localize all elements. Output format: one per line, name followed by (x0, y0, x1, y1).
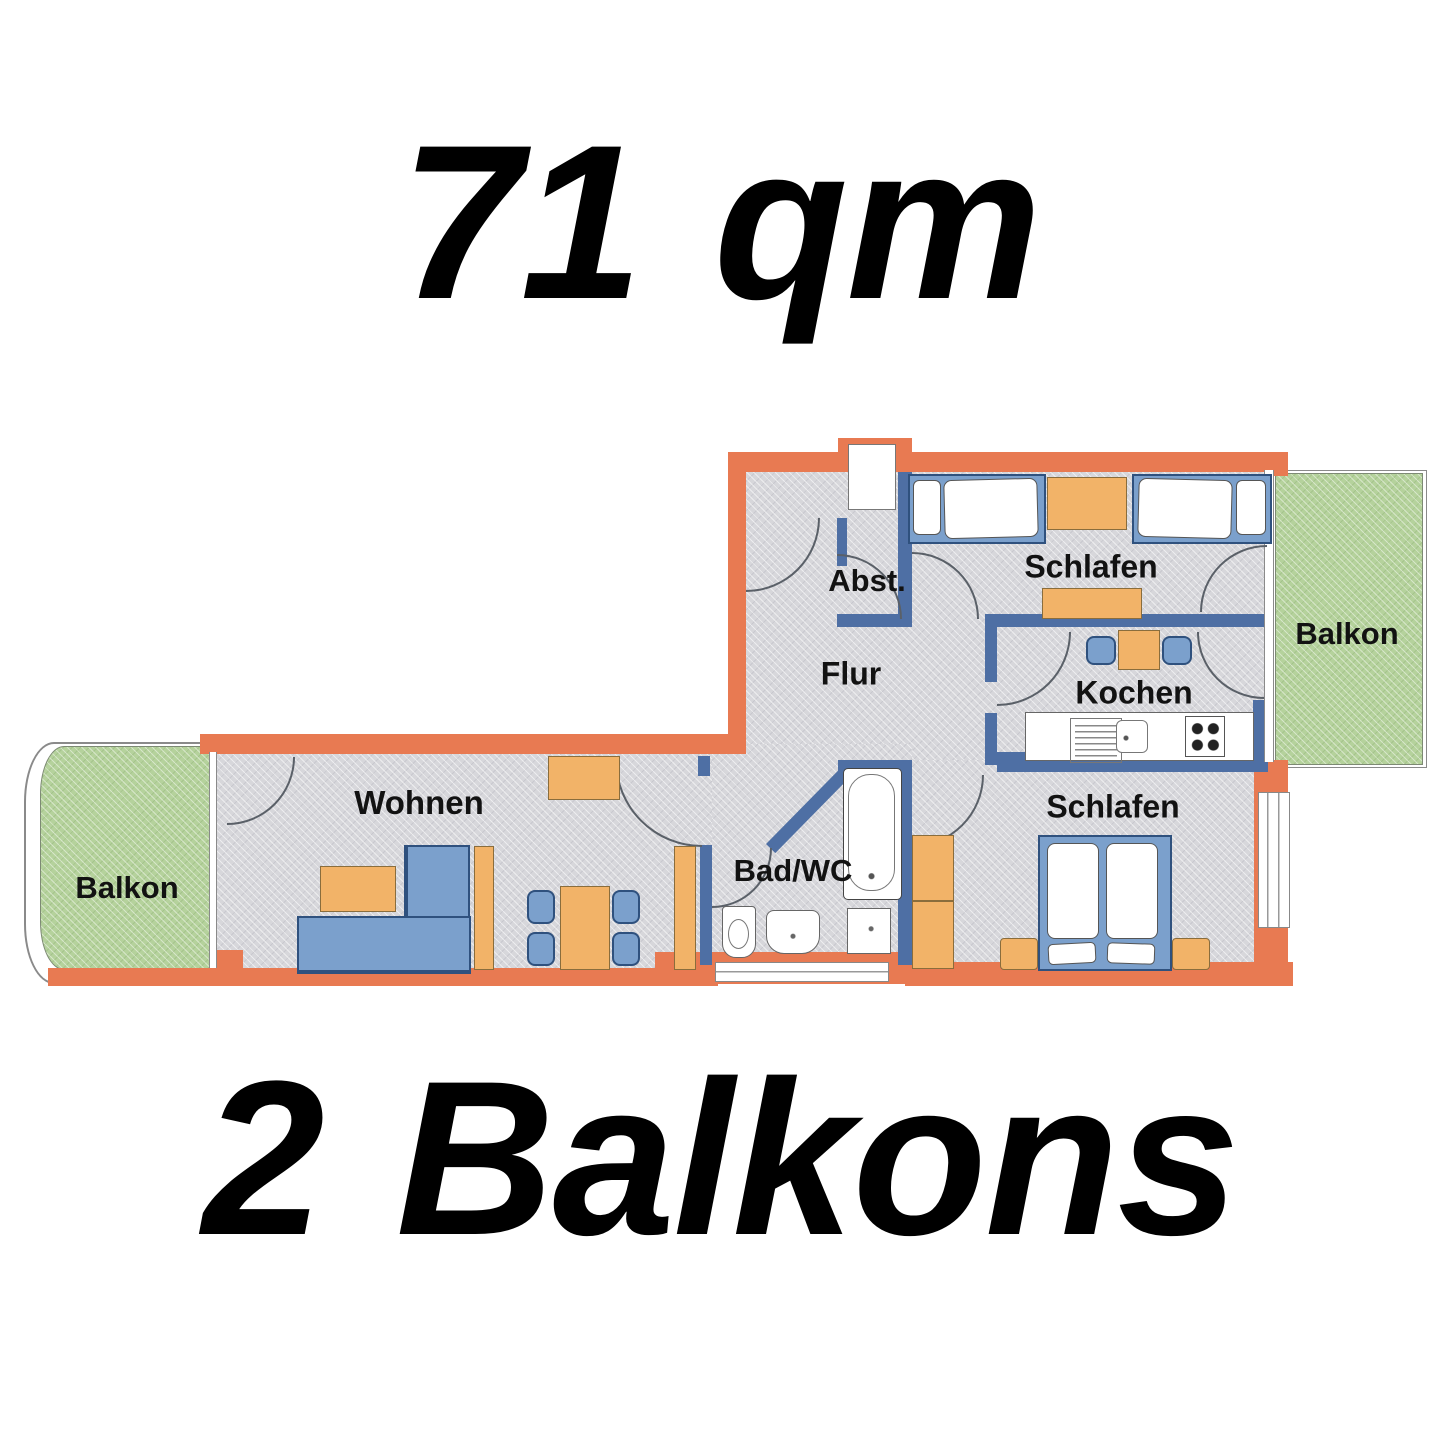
wall-kochen-left-stub (985, 627, 997, 682)
dining-chair-1 (527, 890, 555, 924)
coffee-table (320, 866, 396, 912)
kitchen-table (1118, 630, 1160, 670)
mattress (1106, 843, 1158, 939)
dining-chair-3 (612, 890, 640, 924)
sofa-horizontal (297, 916, 471, 974)
wall-wohnen-top (200, 734, 746, 754)
label-kochen: Kochen (1075, 675, 1192, 712)
mattress (1137, 478, 1233, 539)
nightstand-left (1000, 938, 1038, 970)
nightstand-between-beds (1047, 477, 1127, 530)
label-flur: Flur (821, 656, 881, 693)
window-schlafen-right (1258, 792, 1290, 928)
label-balkon-right: Balkon (1295, 616, 1398, 652)
shelf (474, 846, 494, 970)
wall-top-right-wing (728, 452, 1288, 472)
stove (1185, 716, 1225, 757)
nightstand-right (1172, 938, 1210, 970)
bed-single-right (1132, 474, 1272, 544)
floor-plan-page: 71 qm 2 Balkons (0, 0, 1440, 1440)
wall-bottom-pier (213, 950, 243, 984)
dining-chair-2 (527, 932, 555, 966)
label-wohnen: Wohnen (354, 784, 484, 822)
kitchen-chair-left (1086, 636, 1116, 665)
bed-single-left (908, 474, 1046, 544)
sideboard (548, 756, 620, 800)
kitchen-chair-right (1162, 636, 1192, 665)
label-bad-wc: Bad/WC (734, 853, 853, 889)
balcony-left (40, 746, 217, 970)
bathroom-sink (766, 910, 820, 954)
mattress (1047, 843, 1099, 939)
dresser-schlafen-top (1042, 588, 1142, 619)
label-balkon-left: Balkon (75, 870, 178, 906)
wardrobe-schlafen-upper (912, 835, 954, 901)
bed-double (1038, 835, 1172, 971)
pillow (1107, 942, 1156, 965)
wall-bad-left (700, 845, 712, 965)
wardrobe-schlafen-lower (912, 901, 954, 969)
sink-basin (1116, 720, 1148, 753)
label-schlafen-top: Schlafen (1024, 549, 1157, 586)
label-schlafen-bottom: Schlafen (1046, 789, 1179, 826)
pillow (1047, 942, 1096, 965)
label-abst: Abst. (828, 563, 906, 599)
window-line-balcony-left (209, 752, 217, 968)
toilet (722, 906, 756, 958)
window-bad-bottom (715, 962, 889, 982)
dish-rack (1070, 718, 1122, 763)
dining-table (560, 886, 610, 970)
floor-plan: Balkon Wohnen Bad/WC Flur Abst. Schlafen… (0, 0, 1440, 1440)
pillow (913, 480, 941, 535)
mattress (943, 478, 1039, 539)
pillow (1236, 480, 1266, 535)
bathtub-inner (848, 774, 895, 891)
shower-washer (847, 908, 891, 954)
wardrobe-wohnen (674, 846, 696, 970)
wall-left-flur (728, 452, 746, 754)
toilet-bowl (728, 919, 749, 949)
entrance-door (848, 444, 896, 510)
dining-chair-4 (612, 932, 640, 966)
